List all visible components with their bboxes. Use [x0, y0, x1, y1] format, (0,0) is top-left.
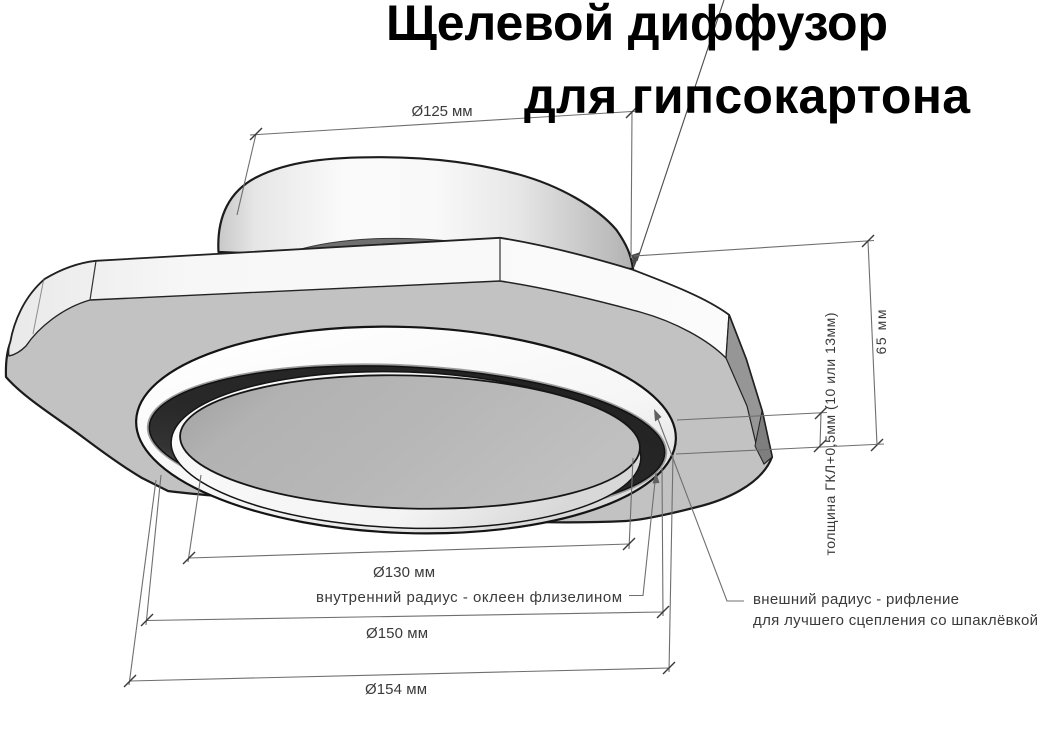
svg-text:Ø125 мм: Ø125 мм	[412, 103, 473, 120]
svg-text:для гипсокартона: для гипсокартона	[524, 68, 971, 124]
svg-text:внешний радиус - рифление: внешний радиус - рифление	[753, 591, 959, 608]
svg-text:Щелевой диффузор: Щелевой диффузор	[386, 0, 888, 51]
svg-text:Ø130 мм: Ø130 мм	[373, 564, 435, 581]
svg-text:65 мм: 65 мм	[873, 310, 889, 355]
svg-text:Ø150 мм: Ø150 мм	[366, 625, 428, 642]
svg-text:внутренний радиус - оклеен фли: внутренний радиус - оклеен флизелином	[316, 589, 622, 606]
svg-text:толщина ГКЛ+0,5мм (10 или 13мм: толщина ГКЛ+0,5мм (10 или 13мм)	[822, 313, 838, 556]
svg-text:для лучшего сцепления со шпакл: для лучшего сцепления со шпаклёвкой	[753, 612, 1038, 629]
svg-text:Ø154 мм: Ø154 мм	[365, 681, 427, 698]
